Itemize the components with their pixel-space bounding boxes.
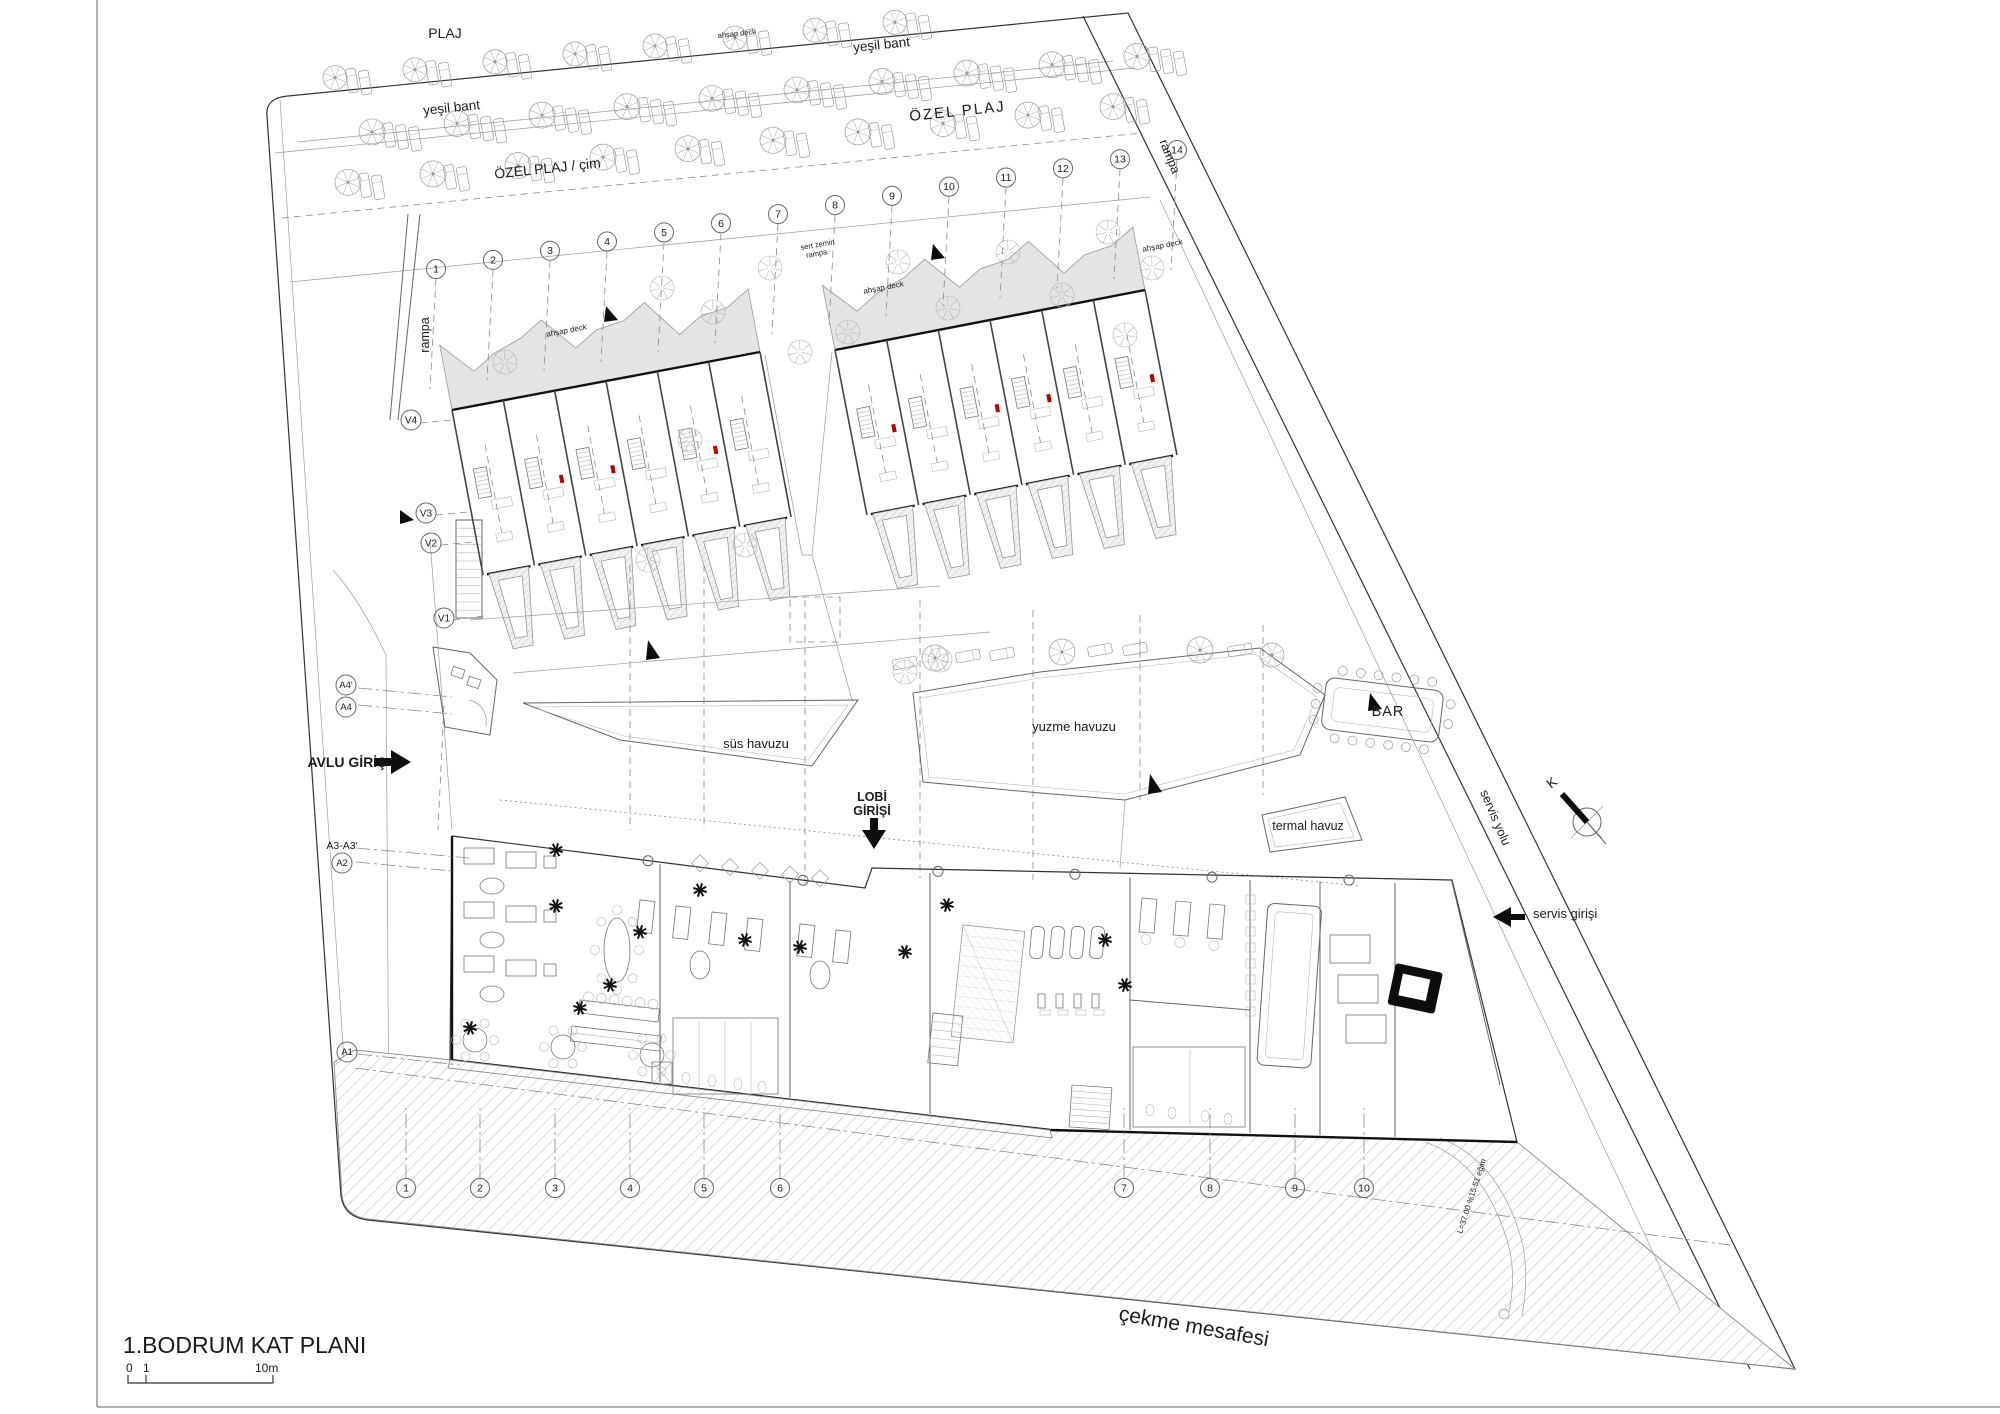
lounger-icon bbox=[467, 114, 481, 139]
sofa bbox=[464, 848, 494, 864]
red-door-mark bbox=[891, 424, 896, 433]
dining-table bbox=[540, 1026, 587, 1068]
red-door-mark bbox=[995, 404, 1000, 413]
scale-10m: 10m bbox=[255, 1361, 278, 1375]
lounger-icon bbox=[613, 147, 627, 172]
grid-bubble-label: 3 bbox=[547, 245, 553, 257]
toilet bbox=[1168, 1108, 1176, 1119]
lounger-icon bbox=[905, 74, 919, 99]
room-tag bbox=[748, 448, 769, 461]
lounger-icon bbox=[395, 124, 409, 149]
service-room bbox=[1338, 975, 1378, 1003]
toilet bbox=[734, 1079, 742, 1090]
label-sus-havuzu: süs havuzu bbox=[723, 736, 789, 751]
sofa bbox=[797, 924, 815, 957]
sofa bbox=[833, 930, 851, 963]
chair bbox=[490, 1036, 499, 1045]
room-tag bbox=[701, 492, 718, 503]
unit-stair bbox=[1115, 356, 1133, 388]
gym-lounger bbox=[1029, 926, 1045, 959]
grand-stair bbox=[951, 925, 1024, 1043]
red-door-mark bbox=[1150, 374, 1155, 383]
table bbox=[690, 951, 710, 979]
bar-stool bbox=[1330, 733, 1340, 743]
umbrella-icon bbox=[883, 10, 907, 34]
label-ahsap-deck-3: ahşap deck bbox=[1142, 237, 1185, 254]
label-ahsap-deck-1: ahşap deck bbox=[546, 322, 589, 339]
umbrella-icon bbox=[1049, 639, 1075, 665]
bar-stool bbox=[1347, 736, 1357, 746]
room-tag bbox=[543, 487, 564, 500]
grid-bubble-label: 8 bbox=[1207, 1183, 1213, 1195]
paver-diamond bbox=[782, 866, 799, 883]
tree-icon bbox=[678, 428, 702, 452]
grid-bubble: 2 bbox=[484, 250, 503, 269]
umbrella-icon bbox=[784, 77, 810, 103]
lounger-icon bbox=[371, 175, 385, 200]
sofa bbox=[464, 902, 494, 918]
wc-block bbox=[1133, 1047, 1245, 1127]
party-wall bbox=[760, 352, 791, 517]
lounger-icon bbox=[1136, 99, 1150, 124]
gym-machine bbox=[1074, 994, 1081, 1008]
wc-block bbox=[673, 1018, 778, 1094]
party-wall bbox=[835, 350, 867, 515]
scale-bar bbox=[128, 1375, 273, 1383]
label-ahsap-deck-4: ahşap deck bbox=[717, 27, 756, 40]
section-marker-label: V4 bbox=[405, 416, 418, 427]
wood-deck bbox=[440, 289, 760, 410]
room-tag bbox=[931, 461, 948, 472]
section-marker-label: V3 bbox=[420, 509, 433, 520]
unit-stair bbox=[908, 396, 926, 428]
massage-bed bbox=[1172, 901, 1191, 948]
umbrella-icon bbox=[483, 50, 507, 74]
toilet bbox=[1146, 1105, 1154, 1116]
gym-machine bbox=[1038, 994, 1045, 1008]
chair bbox=[568, 1059, 577, 1068]
floor-plan-canvas: 1234567891011121314 12345678910 V4V3V2V1… bbox=[0, 0, 2000, 1414]
elevator bbox=[652, 1062, 672, 1084]
grid-bubble: 9 bbox=[883, 186, 902, 205]
grid-bubble-label: 9 bbox=[1292, 1183, 1298, 1195]
grid-bubble-label: 3 bbox=[552, 1183, 558, 1195]
lounger-icon bbox=[565, 107, 579, 132]
table bbox=[480, 878, 504, 894]
grid-bubble-label: 10 bbox=[1358, 1183, 1370, 1195]
party-wall bbox=[1042, 310, 1074, 475]
unit-stair bbox=[1012, 376, 1030, 408]
umbrella-icon bbox=[563, 42, 587, 66]
room-tag bbox=[645, 468, 666, 481]
room-tag bbox=[547, 521, 564, 532]
label-termal-havuz: termal havuz bbox=[1272, 819, 1344, 833]
grid-bubble-label: 1 bbox=[433, 264, 439, 276]
grid-bubble-label: 2 bbox=[477, 1183, 483, 1195]
grid-bubble-label: 6 bbox=[777, 1183, 783, 1195]
tree-icon bbox=[758, 256, 782, 280]
umbrella-icon bbox=[420, 161, 446, 187]
umbrella-icon bbox=[1260, 643, 1284, 667]
grid-bubble-label: 8 bbox=[832, 199, 838, 211]
bar-stool bbox=[1443, 719, 1453, 729]
party-wall bbox=[887, 340, 919, 505]
gym-lounger bbox=[1089, 926, 1105, 959]
courtyard-gate bbox=[433, 647, 497, 735]
plaza-lines bbox=[470, 565, 1360, 886]
room-tag bbox=[496, 531, 513, 542]
grid-bubble: 5 bbox=[655, 223, 674, 242]
gym-lounger bbox=[1049, 926, 1065, 959]
room-tag bbox=[1082, 396, 1103, 409]
grid-bubble-label: 4 bbox=[627, 1183, 633, 1195]
setback-hatch-band bbox=[334, 1050, 1795, 1369]
label-servis-yolu: servis yolu bbox=[1477, 788, 1513, 848]
lounger-icon bbox=[637, 97, 651, 122]
side-table bbox=[544, 964, 556, 976]
column bbox=[1207, 872, 1217, 882]
sofa bbox=[506, 852, 536, 868]
toilet bbox=[1224, 1114, 1232, 1125]
tree-icon bbox=[1113, 323, 1137, 347]
sofa bbox=[464, 956, 494, 972]
swimming-pool bbox=[913, 648, 1325, 868]
lounger-icon bbox=[1173, 51, 1187, 76]
townhouse-blocks bbox=[440, 227, 1177, 649]
lounger-icon bbox=[892, 72, 906, 97]
grid-bubble: 11 bbox=[997, 168, 1016, 187]
lounger-icon bbox=[358, 70, 372, 95]
ornamental-pool bbox=[523, 700, 858, 766]
chair bbox=[628, 974, 637, 983]
umbrella-icon bbox=[760, 127, 786, 153]
sofa bbox=[506, 960, 536, 976]
tree-icon bbox=[886, 250, 910, 274]
chair bbox=[549, 1059, 558, 1068]
grid-bubble: 4 bbox=[598, 232, 617, 251]
massage-bed bbox=[1138, 898, 1157, 945]
label-lobi-girisi-1: LOBİ bbox=[857, 789, 887, 804]
room-tag bbox=[1030, 406, 1051, 419]
room-tag bbox=[927, 426, 948, 439]
chair bbox=[657, 1067, 666, 1076]
lounger-icon bbox=[698, 139, 712, 164]
room-tag bbox=[978, 416, 999, 429]
grid-bubble-label: 9 bbox=[889, 190, 895, 202]
lounger-icon bbox=[977, 63, 991, 88]
lounger-icon bbox=[990, 65, 1004, 90]
lounger-icon bbox=[881, 124, 895, 149]
lounger-icon bbox=[382, 122, 396, 147]
plant-icon bbox=[1098, 933, 1111, 946]
scale-0: 0 bbox=[126, 1361, 133, 1375]
grid-bubble: 12 bbox=[1054, 159, 1073, 178]
unit-stair bbox=[525, 457, 543, 489]
umbrella-icon bbox=[803, 18, 827, 42]
umbrella-icon bbox=[954, 60, 980, 86]
lounger-icon bbox=[1147, 47, 1161, 72]
chair bbox=[549, 1026, 558, 1035]
tree-icon bbox=[1140, 256, 1164, 280]
paver-diamond bbox=[722, 859, 739, 876]
party-wall bbox=[1093, 300, 1125, 465]
drawing-sheet: 1234567891011121314 12345678910 V4V3V2V1… bbox=[0, 0, 2000, 1414]
grid-bubble: 13 bbox=[1111, 150, 1130, 169]
bar-stool bbox=[1391, 672, 1401, 682]
grid-bubble-label: 7 bbox=[1121, 1183, 1127, 1195]
tree-icon bbox=[893, 660, 917, 684]
paver-diamond bbox=[752, 862, 769, 879]
label-bar: BAR bbox=[1372, 704, 1405, 720]
unit-stair bbox=[576, 447, 594, 479]
lounger-icon bbox=[598, 46, 612, 71]
indoor-pool bbox=[1257, 903, 1322, 1068]
service-entry-arrow-icon bbox=[1493, 907, 1525, 927]
umbrella-icon bbox=[845, 119, 871, 145]
lounger-icon bbox=[456, 166, 470, 191]
bar-stool bbox=[1313, 683, 1323, 693]
chair bbox=[638, 1034, 647, 1043]
marker-a1: A1 bbox=[341, 1047, 353, 1058]
lounger-icon bbox=[438, 62, 452, 87]
lounger-icon bbox=[796, 133, 810, 158]
chair bbox=[597, 974, 606, 983]
grid-bubble-label: 12 bbox=[1057, 163, 1069, 175]
lounger-icon bbox=[783, 131, 797, 156]
lounger-icon bbox=[989, 647, 1014, 661]
label-ozel-plaj-cim: ÖZEL PLAJ / çim bbox=[493, 153, 601, 181]
room-tag bbox=[697, 458, 718, 471]
plant-icon bbox=[940, 898, 953, 911]
grid-bubble-label: 4 bbox=[604, 236, 610, 248]
toilet bbox=[1201, 1111, 1209, 1122]
plant-icon bbox=[793, 940, 806, 953]
party-wall bbox=[555, 391, 586, 556]
chair bbox=[597, 917, 606, 926]
lounger-icon bbox=[480, 116, 494, 141]
party-wall bbox=[938, 330, 970, 495]
tree-icon bbox=[788, 340, 812, 364]
room-tag bbox=[594, 477, 615, 490]
title-block: 1.BODRUM KAT PLANI 0 1 10m bbox=[123, 1332, 366, 1383]
umbrella-icon bbox=[699, 85, 725, 111]
lounger-icon bbox=[1087, 643, 1112, 657]
side-table bbox=[544, 856, 556, 868]
sofa bbox=[506, 906, 536, 922]
chair bbox=[591, 946, 600, 955]
bar-stool bbox=[1401, 742, 1411, 752]
chair bbox=[578, 1043, 587, 1052]
lounger-icon bbox=[711, 141, 725, 166]
lounger-icon bbox=[838, 22, 852, 47]
massage-bed bbox=[1206, 904, 1225, 951]
lounger-icon bbox=[1051, 107, 1065, 132]
paver-diamond bbox=[692, 855, 709, 872]
stair bbox=[1069, 1085, 1112, 1130]
chair bbox=[540, 1043, 549, 1052]
lounger-icon bbox=[722, 89, 736, 114]
lounger-icon bbox=[678, 38, 692, 63]
grid-bubble-label: 7 bbox=[775, 209, 781, 221]
umbrella-icon bbox=[1039, 52, 1065, 78]
chair bbox=[461, 1052, 470, 1061]
paver-diamond bbox=[812, 870, 829, 887]
gym-lounger bbox=[1069, 926, 1085, 959]
chair bbox=[638, 1067, 647, 1076]
label-rampa-left: rampa bbox=[418, 317, 432, 352]
grid-bubble-label: 5 bbox=[661, 227, 667, 239]
oval-table bbox=[604, 918, 630, 982]
section-marker-label: V1 bbox=[438, 614, 451, 625]
room-tag bbox=[983, 451, 1000, 462]
bar-stool bbox=[1383, 740, 1393, 750]
grid-bubble: 6 bbox=[712, 214, 731, 233]
unit-stair bbox=[1063, 366, 1081, 398]
umbrella-icon bbox=[675, 136, 701, 162]
lounger-icon bbox=[868, 122, 882, 147]
lounger-icon bbox=[358, 173, 372, 198]
room-tag bbox=[1034, 441, 1051, 452]
lounger-icon bbox=[735, 91, 749, 116]
umbrella-icon bbox=[614, 94, 640, 120]
lounger-icon bbox=[443, 164, 457, 189]
grid-bubble: 1 bbox=[427, 260, 446, 279]
umbrella-icon bbox=[643, 34, 667, 58]
label-avlu-giris: AVLU GİRİŞ bbox=[307, 754, 386, 770]
grid-bubble-label: 5 bbox=[701, 1183, 707, 1195]
lounger-icon bbox=[650, 99, 664, 124]
lounger-icon bbox=[966, 116, 980, 141]
gym-machine bbox=[1056, 994, 1063, 1008]
table bbox=[810, 961, 830, 989]
lounger-icon bbox=[1075, 57, 1089, 82]
bar-stool bbox=[1356, 668, 1366, 678]
plant-icon bbox=[633, 925, 646, 938]
column bbox=[933, 866, 943, 876]
red-door-mark bbox=[610, 465, 615, 474]
party-wall bbox=[1145, 290, 1177, 455]
unit-stair bbox=[857, 406, 875, 438]
umbrella-icon bbox=[1100, 94, 1126, 120]
lounger-icon bbox=[1062, 55, 1076, 80]
service-room bbox=[1346, 1015, 1386, 1043]
toilet bbox=[682, 1073, 690, 1084]
scale-1: 1 bbox=[143, 1361, 150, 1375]
bar-stool bbox=[1446, 699, 1456, 709]
grid-bubble: 8 bbox=[826, 195, 845, 214]
chair bbox=[480, 1052, 489, 1061]
bar-stool bbox=[1374, 670, 1384, 680]
room-tag bbox=[879, 471, 896, 482]
bar-stool bbox=[1338, 666, 1348, 676]
chair bbox=[628, 917, 637, 926]
label-north: K bbox=[1544, 774, 1560, 791]
lounger-icon bbox=[518, 54, 532, 79]
lounger-icon bbox=[758, 30, 772, 55]
umbrella-icon bbox=[359, 119, 385, 145]
party-wall bbox=[709, 362, 740, 527]
room-tag bbox=[491, 497, 512, 510]
unit-stair bbox=[679, 428, 697, 460]
grid-bubble-label: 13 bbox=[1114, 154, 1126, 166]
grid-bubble-label: 10 bbox=[943, 181, 955, 193]
umbrella-icon bbox=[335, 169, 361, 195]
party-wall bbox=[657, 371, 688, 536]
umbrella-icon bbox=[869, 69, 895, 95]
room-tag bbox=[875, 436, 896, 449]
lobby-entry-arrow-icon bbox=[862, 818, 886, 849]
bar-stool bbox=[1427, 677, 1437, 687]
umbrella-icon bbox=[529, 102, 555, 128]
umbrella-icon bbox=[1124, 43, 1150, 69]
room-tag bbox=[752, 483, 769, 494]
plant-icon bbox=[693, 883, 706, 896]
marker-a3: A3-A3' bbox=[326, 840, 357, 852]
sauna bbox=[1387, 963, 1443, 1014]
chair bbox=[629, 1051, 638, 1060]
service-room bbox=[1330, 935, 1370, 963]
label-servis-girisi: servis girişi bbox=[1533, 906, 1597, 921]
lounger-icon bbox=[1038, 105, 1052, 130]
room-tag bbox=[598, 512, 615, 523]
chair bbox=[480, 1019, 489, 1028]
room-tag bbox=[1138, 421, 1155, 432]
grid-bubble: 3 bbox=[541, 241, 560, 260]
unit-stair bbox=[473, 467, 491, 499]
lounger-icon bbox=[955, 649, 980, 663]
party-wall bbox=[990, 320, 1022, 485]
unit-stair bbox=[627, 438, 645, 470]
umbrella-icon bbox=[1015, 102, 1041, 128]
section-marker-label: V2 bbox=[425, 539, 438, 550]
red-door-mark bbox=[1046, 394, 1051, 403]
plant-icon bbox=[898, 945, 911, 958]
grid-bubble-label: 2 bbox=[490, 254, 496, 266]
red-door-mark bbox=[713, 446, 718, 455]
grid-bubble: 10 bbox=[940, 177, 959, 196]
label-lobi-girisi-2: GİRİŞİ bbox=[853, 803, 891, 818]
red-door-mark bbox=[559, 475, 564, 484]
sofa bbox=[673, 906, 691, 939]
umbrella-icon bbox=[403, 58, 427, 82]
unit-stair bbox=[730, 418, 748, 450]
grid-bubble-label: 1 bbox=[403, 1183, 409, 1195]
bar-stool bbox=[1365, 738, 1375, 748]
chair bbox=[613, 906, 622, 915]
gym-machine bbox=[1092, 994, 1099, 1008]
lounger-icon bbox=[918, 15, 932, 40]
chair bbox=[635, 946, 644, 955]
lounger-icon bbox=[626, 149, 640, 174]
unit-stair bbox=[960, 386, 978, 418]
grid-bubble-label: 11 bbox=[1001, 172, 1012, 184]
lounger-icon bbox=[820, 82, 834, 107]
party-wall bbox=[503, 400, 534, 565]
label-yesil-bant-right: yeşil bant bbox=[852, 34, 911, 55]
lounger-icon bbox=[1122, 642, 1147, 656]
bar-stool bbox=[1419, 744, 1429, 754]
room-tag bbox=[1086, 431, 1103, 442]
toilet bbox=[758, 1082, 766, 1093]
room-tag bbox=[650, 502, 667, 513]
chair bbox=[568, 1026, 577, 1035]
column bbox=[1070, 869, 1080, 879]
room-tag bbox=[1133, 386, 1154, 399]
umbrella-icon bbox=[323, 66, 347, 90]
grid-bubble: 7 bbox=[769, 205, 788, 224]
grid-bubble-label: 6 bbox=[718, 218, 724, 230]
marker-a4p: A4' bbox=[339, 680, 353, 691]
